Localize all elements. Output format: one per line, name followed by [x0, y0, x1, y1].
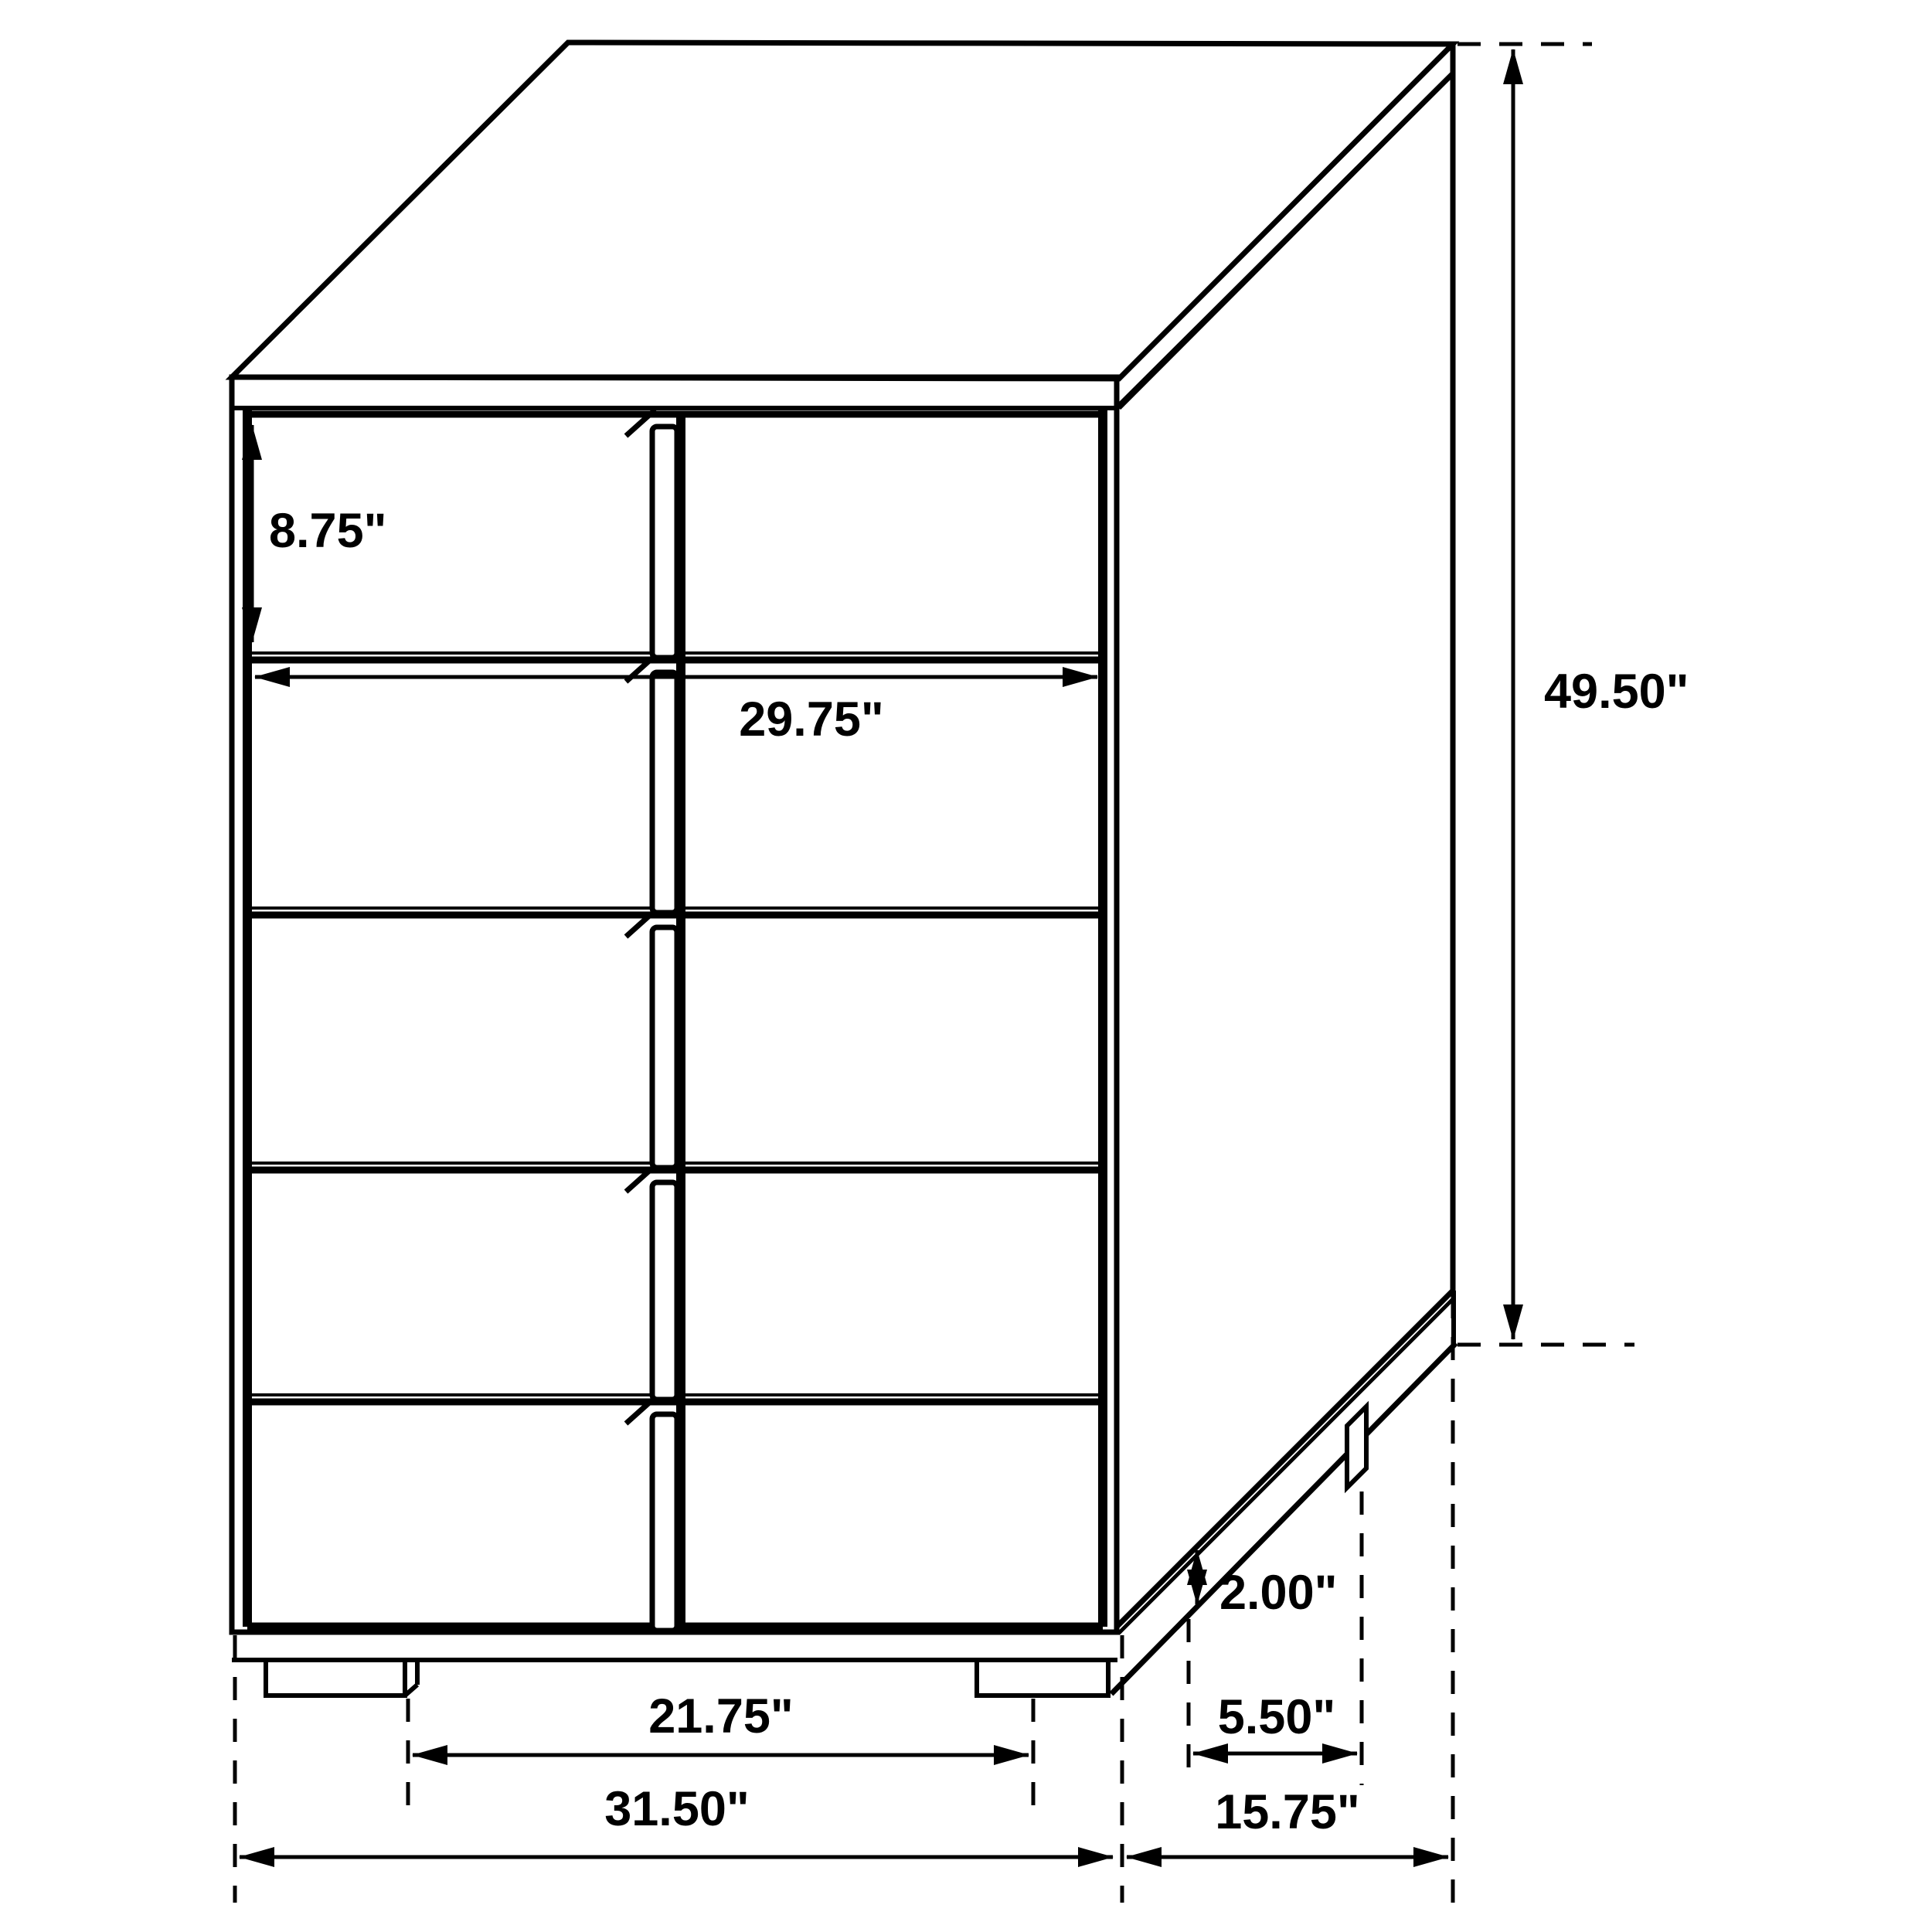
- dim-label-overall-height: 49.50": [1544, 665, 1689, 719]
- dim-label-drawer-width: 29.75": [739, 692, 884, 747]
- front-foot-right: [977, 1660, 1108, 1696]
- dim-label-overall-width: 31.50": [604, 1782, 750, 1836]
- chest-dimension-drawing: 8.75" 29.75" 49.50" 2.00" 5.50": [0, 0, 1932, 1932]
- dim-overall-width: 31.50": [235, 1635, 1113, 1903]
- drawer-pull-1: [652, 427, 677, 658]
- dim-label-side-foot-setback: 5.50": [1218, 1690, 1336, 1744]
- dim-label-front-feet-span: 21.75": [648, 1689, 794, 1743]
- dim-label-top-drawer-height: 8.75": [269, 504, 387, 558]
- dim-top-drawer-height: 8.75": [252, 425, 387, 642]
- back-foot: [1347, 1406, 1366, 1488]
- drawer-pull-3: [652, 927, 677, 1168]
- drawer-pulls: [626, 410, 677, 1631]
- drawer-pull-4: [652, 1182, 677, 1400]
- dim-label-base-height: 2.00": [1219, 1566, 1338, 1620]
- drawer-pull-2: [652, 672, 677, 913]
- dim-label-overall-depth: 15.75": [1215, 1785, 1360, 1839]
- cabinet-outline: [232, 43, 1456, 1696]
- side-base-rail-bottom: [1111, 1343, 1456, 1694]
- front-foot-left: [266, 1660, 405, 1696]
- top-face: [232, 43, 1453, 379]
- dim-overall-height: 49.50": [1458, 44, 1689, 1345]
- dimension-diagram-page: 8.75" 29.75" 49.50" 2.00" 5.50": [0, 0, 1932, 1932]
- drawer-pull-5: [652, 1414, 677, 1631]
